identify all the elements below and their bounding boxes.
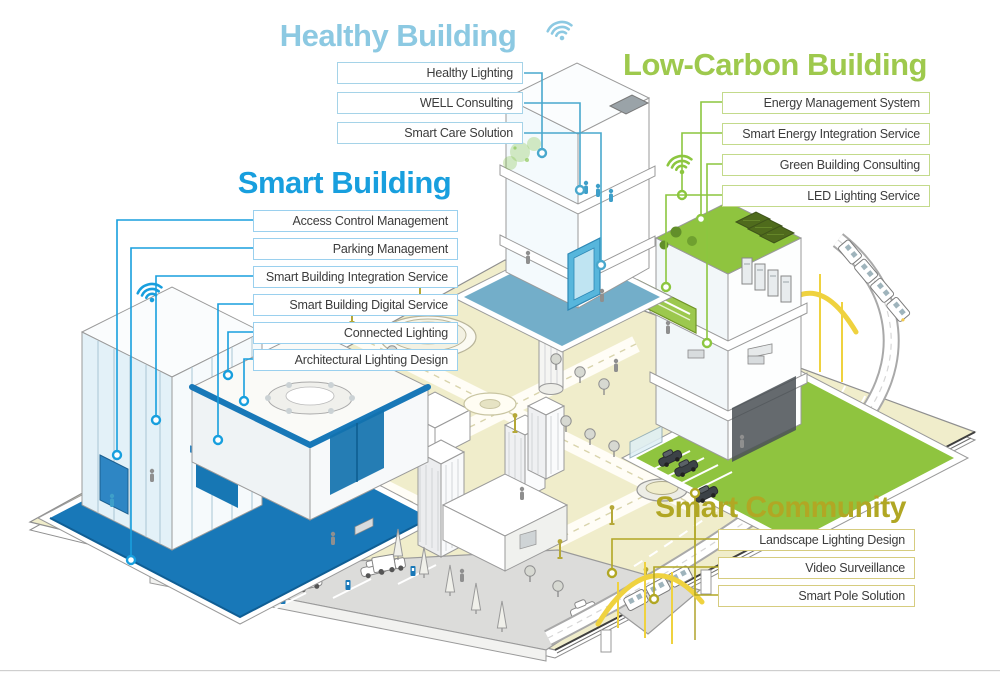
label-smart-building-integration-service: Smart Building Integration Service: [253, 266, 458, 288]
occupant: [526, 251, 530, 264]
label-well-consulting: WELL Consulting: [337, 92, 523, 114]
wifi-icon: [546, 20, 574, 44]
label-connected-lighting: Connected Lighting: [253, 322, 458, 344]
label-architectural-lighting-design: Architectural Lighting Design: [253, 349, 458, 371]
label-parking-management: Parking Management: [253, 238, 458, 260]
worker: [740, 435, 744, 448]
wifi-icon: [666, 154, 694, 178]
occupant: [150, 469, 154, 482]
occupant: [110, 494, 114, 507]
pedestrian: [331, 532, 335, 545]
label-video-surveillance: Video Surveillance: [718, 557, 915, 579]
ev-charger-icon: [411, 566, 416, 576]
label-smart-building-digital-service: Smart Building Digital Service: [253, 294, 458, 316]
section-title-healthy-building: Healthy Building: [253, 20, 543, 53]
label-energy-management-system: Energy Management System: [722, 92, 930, 114]
occupant: [609, 189, 613, 202]
smart-city-infographic: Healthy Building Low-Carbon Building Sma…: [0, 0, 1000, 675]
label-landscape-lighting-design: Landscape Lighting Design: [718, 529, 915, 551]
section-title-smart-community: Smart Community: [633, 492, 928, 524]
label-green-building-consulting: Green Building Consulting: [722, 154, 930, 176]
label-smart-pole-solution: Smart Pole Solution: [718, 585, 915, 607]
occupant: [596, 184, 600, 197]
section-title-smart-building: Smart Building: [222, 167, 467, 200]
label-access-control-management: Access Control Management: [253, 210, 458, 232]
pedestrian: [614, 359, 618, 372]
label-led-lighting-service: LED Lighting Service: [722, 185, 930, 207]
label-smart-care-solution: Smart Care Solution: [337, 122, 523, 144]
pedestrian: [460, 569, 464, 582]
section-title-low-carbon-building: Low-Carbon Building: [605, 49, 945, 82]
ev-charger-icon: [346, 580, 351, 590]
bottom-divider: [0, 670, 1000, 671]
label-healthy-lighting: Healthy Lighting: [337, 62, 523, 84]
worker: [666, 321, 670, 334]
pedestrian: [520, 487, 524, 500]
label-smart-energy-integration-service: Smart Energy Integration Service: [722, 123, 930, 145]
